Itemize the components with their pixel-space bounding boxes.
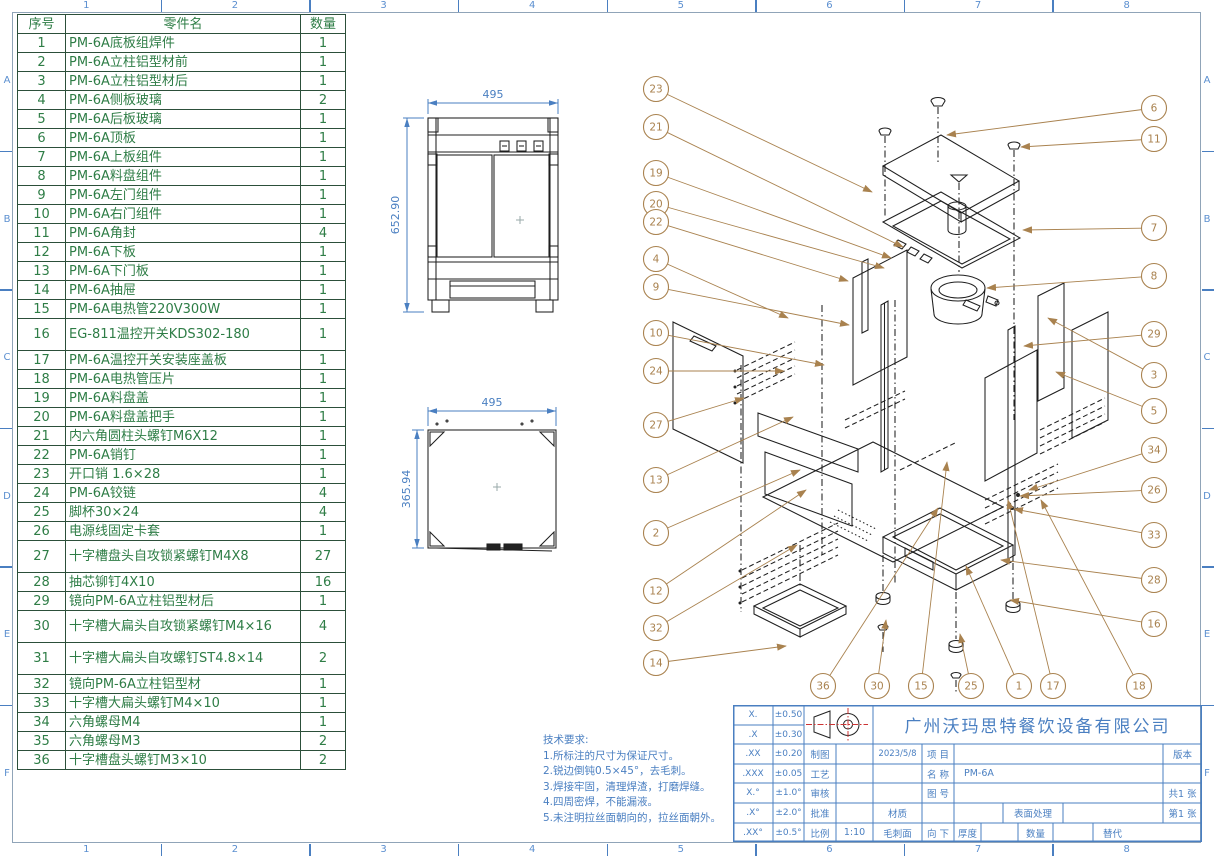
header-qty: 数量 bbox=[301, 15, 346, 34]
part-no: 16 bbox=[18, 319, 66, 351]
surface-label: 表面处理 bbox=[1003, 803, 1063, 823]
scale-value: 1:10 bbox=[836, 823, 873, 842]
table-row: 33十字槽大扁头螺钉M4×101 bbox=[18, 694, 346, 713]
part-no: 17 bbox=[18, 351, 66, 370]
zone-tick bbox=[904, 844, 906, 856]
part-name: PM-6A角封 bbox=[66, 224, 301, 243]
table-row: 16EG-811温控开关KDS302-1801 bbox=[18, 319, 346, 351]
zone-tick bbox=[1202, 705, 1214, 707]
zone-column-label-bottom: 6 bbox=[822, 844, 836, 856]
part-qty: 1 bbox=[301, 186, 346, 205]
material-label: 材质 bbox=[873, 803, 922, 823]
part-no: 35 bbox=[18, 732, 66, 751]
zone-tick bbox=[607, 0, 609, 12]
zone-tick bbox=[1202, 428, 1214, 430]
part-no: 34 bbox=[18, 713, 66, 732]
table-row: 14PM-6A抽屉1 bbox=[18, 281, 346, 300]
part-no: 7 bbox=[18, 148, 66, 167]
header-no: 序号 bbox=[18, 15, 66, 34]
part-qty: 1 bbox=[301, 389, 346, 408]
part-no: 29 bbox=[18, 592, 66, 611]
part-no: 24 bbox=[18, 484, 66, 503]
zone-column-label-top: 8 bbox=[1120, 0, 1134, 12]
tolerance-value: ±0.50 bbox=[773, 705, 804, 725]
zone-tick bbox=[161, 0, 163, 12]
burr-label: 毛刺面 bbox=[873, 823, 922, 842]
part-qty: 1 bbox=[301, 129, 346, 148]
part-qty: 1 bbox=[301, 243, 346, 262]
part-name: 抽芯铆钉4X10 bbox=[66, 573, 301, 592]
part-qty: 1 bbox=[301, 300, 346, 319]
tolerance-value: ±2.0° bbox=[773, 803, 804, 823]
parts-table-header: 序号 零件名 数量 bbox=[18, 15, 346, 34]
part-name: 十字槽大扁头螺钉M4×10 bbox=[66, 694, 301, 713]
part-no: 19 bbox=[18, 389, 66, 408]
part-no: 25 bbox=[18, 503, 66, 522]
zone-row-label-left: D bbox=[0, 491, 14, 503]
part-no: 20 bbox=[18, 408, 66, 427]
zone-tick bbox=[458, 844, 460, 856]
part-name: 十字槽大扁头自攻螺钉ST4.8×14 bbox=[66, 643, 301, 675]
part-qty: 1 bbox=[301, 167, 346, 186]
part-name: PM-6A底板组焊件 bbox=[66, 34, 301, 53]
part-name: PM-6A下门板 bbox=[66, 262, 301, 281]
zone-row-label-left: A bbox=[0, 75, 14, 87]
table-row: 2PM-6A立柱铝型材前1 bbox=[18, 53, 346, 72]
table-row: 36十字槽盘头螺钉M3×102 bbox=[18, 751, 346, 770]
tech-note-line: 3.焊接牢固，清理焊渣，打磨焊缝。 bbox=[543, 780, 721, 796]
zone-tick bbox=[458, 0, 460, 12]
version-label: 版本 bbox=[1163, 744, 1202, 764]
zone-tick bbox=[0, 566, 12, 568]
tolerance-label: .XXX bbox=[733, 764, 773, 783]
part-name: 六角螺母M4 bbox=[66, 713, 301, 732]
table-row: 3PM-6A立柱铝型材后1 bbox=[18, 72, 346, 91]
process-label: 工艺 bbox=[804, 764, 836, 783]
zone-column-label-bottom: 2 bbox=[228, 844, 242, 856]
zone-row-label-right: D bbox=[1200, 491, 1214, 503]
thickness-label: 厚度 bbox=[954, 823, 981, 842]
zone-column-label-bottom: 3 bbox=[377, 844, 391, 856]
table-row: 13PM-6A下门板1 bbox=[18, 262, 346, 281]
part-name: PM-6A左门组件 bbox=[66, 186, 301, 205]
part-no: 9 bbox=[18, 186, 66, 205]
part-name: PM-6A立柱铝型材后 bbox=[66, 72, 301, 91]
part-qty: 4 bbox=[301, 224, 346, 243]
part-no: 27 bbox=[18, 541, 66, 573]
zone-tick bbox=[0, 151, 12, 153]
part-name: PM-6A上板组件 bbox=[66, 148, 301, 167]
qty-label: 数量 bbox=[1018, 823, 1053, 842]
zone-column-label-top: 6 bbox=[822, 0, 836, 12]
tolerance-label: .XX bbox=[733, 744, 773, 764]
zone-column-label-top: 2 bbox=[228, 0, 242, 12]
check-label: 审核 bbox=[804, 783, 836, 803]
tolerance-value: ±0.20 bbox=[773, 744, 804, 764]
tolerance-value: ±1.0° bbox=[773, 783, 804, 803]
table-row: 27十字槽盘头自攻锁紧螺钉M4X827 bbox=[18, 541, 346, 573]
part-no: 2 bbox=[18, 53, 66, 72]
zone-row-label-right: C bbox=[1200, 352, 1214, 364]
part-qty: 1 bbox=[301, 281, 346, 300]
part-qty: 1 bbox=[301, 110, 346, 129]
table-row: 15PM-6A电热管220V300W1 bbox=[18, 300, 346, 319]
zone-column-label-top: 7 bbox=[971, 0, 985, 12]
zone-tick bbox=[1202, 289, 1214, 291]
drawing-no-label: 图 号 bbox=[922, 783, 954, 803]
part-no: 14 bbox=[18, 281, 66, 300]
tolerance-value: ±0.30 bbox=[773, 725, 804, 744]
part-qty: 2 bbox=[301, 91, 346, 110]
part-name: PM-6A抽屉 bbox=[66, 281, 301, 300]
part-qty: 1 bbox=[301, 408, 346, 427]
part-no: 4 bbox=[18, 91, 66, 110]
table-row: 5PM-6A后板玻璃1 bbox=[18, 110, 346, 129]
tolerance-value: ±0.05 bbox=[773, 764, 804, 783]
part-name: PM-6A铰链 bbox=[66, 484, 301, 503]
part-qty: 1 bbox=[301, 262, 346, 281]
zone-tick bbox=[904, 0, 906, 12]
zone-tick bbox=[309, 844, 311, 856]
zone-tick bbox=[1202, 151, 1214, 153]
part-no: 21 bbox=[18, 427, 66, 446]
tolerance-label: .XX° bbox=[733, 823, 773, 842]
table-row: 22PM-6A销钉1 bbox=[18, 446, 346, 465]
table-row: 30十字槽大扁头自攻锁紧螺钉M4×164 bbox=[18, 611, 346, 643]
table-row: 19PM-6A料盘盖1 bbox=[18, 389, 346, 408]
zone-row-label-left: B bbox=[0, 214, 14, 226]
part-name: PM-6A下板 bbox=[66, 243, 301, 262]
part-no: 36 bbox=[18, 751, 66, 770]
part-name: 开口销 1.6×28 bbox=[66, 465, 301, 484]
projection-symbol bbox=[804, 705, 873, 744]
part-name: PM-6A料盘盖 bbox=[66, 389, 301, 408]
sheet-no: 第1 张 bbox=[1163, 803, 1202, 823]
table-row: 11PM-6A角封4 bbox=[18, 224, 346, 243]
drawn-date: 2023/5/8 bbox=[873, 744, 922, 764]
zone-column-label-bottom: 4 bbox=[525, 844, 539, 856]
part-qty: 1 bbox=[301, 319, 346, 351]
table-row: 20PM-6A料盘盖把手1 bbox=[18, 408, 346, 427]
part-qty: 1 bbox=[301, 713, 346, 732]
part-no: 33 bbox=[18, 694, 66, 713]
part-qty: 2 bbox=[301, 751, 346, 770]
part-qty: 1 bbox=[301, 53, 346, 72]
part-no: 8 bbox=[18, 167, 66, 186]
title-block: X.±0.50.X±0.30.XX±0.20.XXX±0.05X.°±1.0°.… bbox=[733, 705, 1202, 842]
header-name: 零件名 bbox=[66, 15, 301, 34]
part-qty: 2 bbox=[301, 732, 346, 751]
table-row: 4PM-6A侧板玻璃2 bbox=[18, 91, 346, 110]
zone-row-label-left: C bbox=[0, 352, 14, 364]
part-name: 内六角圆柱头螺钉M6X12 bbox=[66, 427, 301, 446]
table-row: 18PM-6A电热管压片1 bbox=[18, 370, 346, 389]
part-no: 22 bbox=[18, 446, 66, 465]
tech-notes-title: 技术要求: bbox=[543, 733, 721, 749]
part-no: 18 bbox=[18, 370, 66, 389]
zone-tick bbox=[1202, 566, 1214, 568]
part-name: PM-6A销钉 bbox=[66, 446, 301, 465]
part-name: 十字槽盘头螺钉M3×10 bbox=[66, 751, 301, 770]
company-name: 广州沃玛思特餐饮设备有限公司 bbox=[873, 705, 1202, 744]
scale-label: 比例 bbox=[804, 823, 836, 842]
zone-tick bbox=[1052, 0, 1054, 12]
table-row: 7PM-6A上板组件1 bbox=[18, 148, 346, 167]
parts-rows: 1PM-6A底板组焊件12PM-6A立柱铝型材前13PM-6A立柱铝型材后14P… bbox=[18, 34, 346, 770]
sheets-total: 共1 张 bbox=[1163, 783, 1202, 803]
part-no: 10 bbox=[18, 205, 66, 224]
zone-column-label-top: 5 bbox=[674, 0, 688, 12]
part-name: PM-6A料盘组件 bbox=[66, 167, 301, 186]
part-qty: 16 bbox=[301, 573, 346, 592]
table-row: 1PM-6A底板组焊件1 bbox=[18, 34, 346, 53]
part-qty: 4 bbox=[301, 611, 346, 643]
part-qty: 4 bbox=[301, 503, 346, 522]
part-qty: 1 bbox=[301, 522, 346, 541]
part-no: 1 bbox=[18, 34, 66, 53]
name-value: PM-6A bbox=[954, 764, 1074, 783]
zone-tick bbox=[0, 705, 12, 707]
part-name: PM-6A顶板 bbox=[66, 129, 301, 148]
table-row: 28抽芯铆钉4X1016 bbox=[18, 573, 346, 592]
part-no: 15 bbox=[18, 300, 66, 319]
part-qty: 4 bbox=[301, 484, 346, 503]
part-no: 30 bbox=[18, 611, 66, 643]
tolerance-label: X. bbox=[733, 705, 773, 725]
project-label: 项 目 bbox=[922, 744, 954, 764]
zone-row-label-right: A bbox=[1200, 75, 1214, 87]
part-name: 脚杯30×24 bbox=[66, 503, 301, 522]
tech-note-line: 4.四周密焊，不能漏液。 bbox=[543, 795, 721, 811]
table-row: 26电源线固定卡套1 bbox=[18, 522, 346, 541]
table-row: 17PM-6A温控开关安装座盖板1 bbox=[18, 351, 346, 370]
part-no: 12 bbox=[18, 243, 66, 262]
part-name: PM-6A电热管220V300W bbox=[66, 300, 301, 319]
part-no: 23 bbox=[18, 465, 66, 484]
part-qty: 1 bbox=[301, 72, 346, 91]
part-qty: 1 bbox=[301, 465, 346, 484]
part-qty: 1 bbox=[301, 148, 346, 167]
zone-column-label-top: 4 bbox=[525, 0, 539, 12]
table-row: 6PM-6A顶板1 bbox=[18, 129, 346, 148]
part-name: PM-6A电热管压片 bbox=[66, 370, 301, 389]
part-qty: 2 bbox=[301, 643, 346, 675]
table-row: 29镜向PM-6A立柱铝型材后1 bbox=[18, 592, 346, 611]
part-name: 六角螺母M3 bbox=[66, 732, 301, 751]
part-name: 十字槽大扁头自攻锁紧螺钉M4×16 bbox=[66, 611, 301, 643]
drawn-label: 制图 bbox=[804, 744, 836, 764]
table-row: 23开口销 1.6×281 bbox=[18, 465, 346, 484]
tolerance-label: .X bbox=[733, 725, 773, 744]
part-qty: 1 bbox=[301, 351, 346, 370]
table-row: 25脚杯30×244 bbox=[18, 503, 346, 522]
technical-requirements: 技术要求: 1.所标注的尺寸为保证尺寸。2.锐边倒钝0.5×45°，去毛刺。3.… bbox=[543, 733, 721, 826]
zone-tick bbox=[1052, 844, 1054, 856]
part-no: 31 bbox=[18, 643, 66, 675]
part-name: PM-6A右门组件 bbox=[66, 205, 301, 224]
part-name: PM-6A料盘盖把手 bbox=[66, 408, 301, 427]
zone-tick bbox=[0, 428, 12, 430]
part-qty: 1 bbox=[301, 694, 346, 713]
part-qty: 27 bbox=[301, 541, 346, 573]
zone-tick bbox=[607, 844, 609, 856]
part-name: PM-6A后板玻璃 bbox=[66, 110, 301, 129]
zone-row-label-left: F bbox=[0, 768, 14, 780]
part-qty: 1 bbox=[301, 205, 346, 224]
tech-note-line: 2.锐边倒钝0.5×45°，去毛刺。 bbox=[543, 764, 721, 780]
table-row: 31十字槽大扁头自攻螺钉ST4.8×142 bbox=[18, 643, 346, 675]
part-name: EG-811温控开关KDS302-180 bbox=[66, 319, 301, 351]
table-row: 35六角螺母M32 bbox=[18, 732, 346, 751]
part-no: 13 bbox=[18, 262, 66, 281]
part-name: PM-6A侧板玻璃 bbox=[66, 91, 301, 110]
zone-column-label-bottom: 7 bbox=[971, 844, 985, 856]
table-row: 34六角螺母M41 bbox=[18, 713, 346, 732]
table-row: 24PM-6A铰链4 bbox=[18, 484, 346, 503]
tech-note-line: 1.所标注的尺寸为保证尺寸。 bbox=[543, 749, 721, 765]
part-qty: 1 bbox=[301, 427, 346, 446]
approve-label: 批准 bbox=[804, 803, 836, 823]
tech-notes-lines: 1.所标注的尺寸为保证尺寸。2.锐边倒钝0.5×45°，去毛刺。3.焊接牢固，清… bbox=[543, 749, 721, 827]
table-row: 32镜向PM-6A立柱铝型材1 bbox=[18, 675, 346, 694]
zone-column-label-bottom: 5 bbox=[674, 844, 688, 856]
tolerance-value: ±0.5° bbox=[773, 823, 804, 842]
part-no: 3 bbox=[18, 72, 66, 91]
part-name: PM-6A温控开关安装座盖板 bbox=[66, 351, 301, 370]
part-qty: 1 bbox=[301, 34, 346, 53]
table-row: 12PM-6A下板1 bbox=[18, 243, 346, 262]
part-no: 5 bbox=[18, 110, 66, 129]
zone-column-label-top: 3 bbox=[377, 0, 391, 12]
zone-row-label-left: E bbox=[0, 629, 14, 641]
zone-row-label-right: B bbox=[1200, 214, 1214, 226]
part-qty: 1 bbox=[301, 446, 346, 465]
substitute-label: 替代 bbox=[1093, 823, 1193, 842]
part-no: 11 bbox=[18, 224, 66, 243]
burr-value: 向 下 bbox=[922, 823, 954, 842]
zone-tick bbox=[309, 0, 311, 12]
table-row: 21内六角圆柱头螺钉M6X121 bbox=[18, 427, 346, 446]
part-name: 电源线固定卡套 bbox=[66, 522, 301, 541]
zone-tick bbox=[0, 289, 12, 291]
part-no: 26 bbox=[18, 522, 66, 541]
part-qty: 1 bbox=[301, 675, 346, 694]
table-row: 10PM-6A右门组件1 bbox=[18, 205, 346, 224]
part-name: 十字槽盘头自攻锁紧螺钉M4X8 bbox=[66, 541, 301, 573]
tolerance-label: .X° bbox=[733, 803, 773, 823]
part-qty: 1 bbox=[301, 370, 346, 389]
table-row: 9PM-6A左门组件1 bbox=[18, 186, 346, 205]
table-row: 8PM-6A料盘组件1 bbox=[18, 167, 346, 186]
part-no: 28 bbox=[18, 573, 66, 592]
part-name: PM-6A立柱铝型材前 bbox=[66, 53, 301, 72]
tolerance-label: X.° bbox=[733, 783, 773, 803]
zone-column-label-bottom: 8 bbox=[1120, 844, 1134, 856]
part-no: 6 bbox=[18, 129, 66, 148]
parts-table: 序号 零件名 数量 1PM-6A底板组焊件12PM-6A立柱铝型材前13PM-6… bbox=[17, 14, 346, 770]
zone-row-label-right: E bbox=[1200, 629, 1214, 641]
zone-column-label-bottom: 1 bbox=[79, 844, 93, 856]
zone-row-label-right: F bbox=[1200, 768, 1214, 780]
zone-tick bbox=[755, 844, 757, 856]
zone-column-label-top: 1 bbox=[79, 0, 93, 12]
part-qty: 1 bbox=[301, 592, 346, 611]
part-name: 镜向PM-6A立柱铝型材后 bbox=[66, 592, 301, 611]
part-no: 32 bbox=[18, 675, 66, 694]
zone-tick bbox=[161, 844, 163, 856]
zone-tick bbox=[755, 0, 757, 12]
tech-note-line: 5.未注明拉丝面朝向的，拉丝面朝外。 bbox=[543, 811, 721, 827]
name-label: 名 称 bbox=[922, 764, 954, 783]
part-name: 镜向PM-6A立柱铝型材 bbox=[66, 675, 301, 694]
